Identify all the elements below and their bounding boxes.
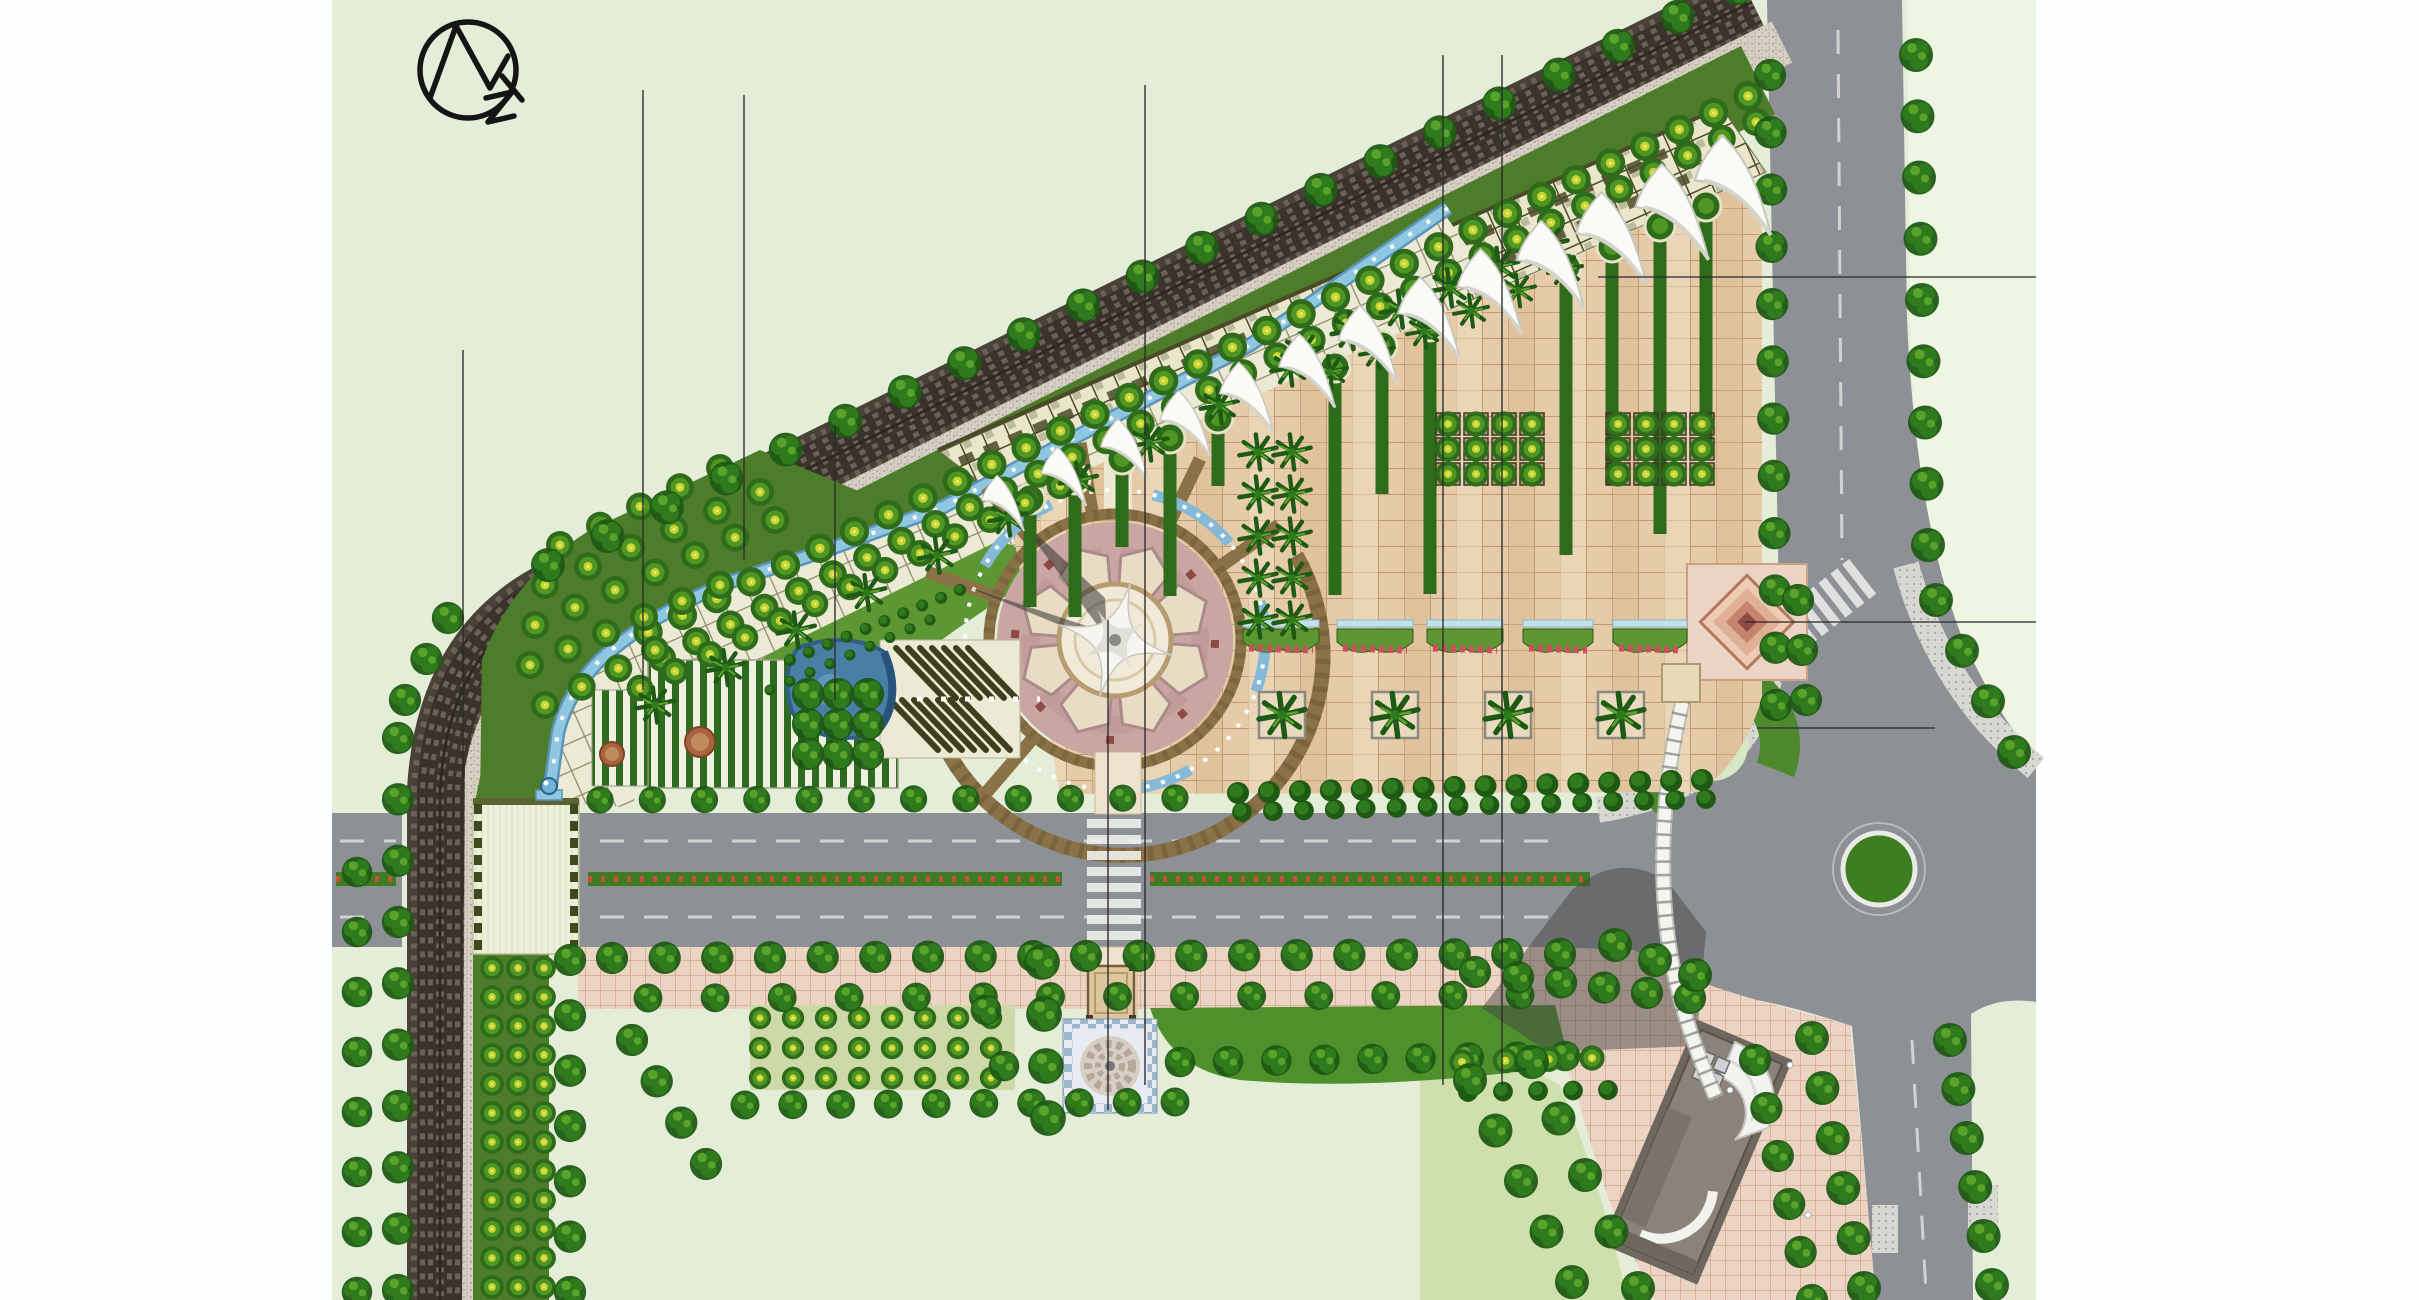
tree-icon (769, 433, 803, 467)
shrub-icon (1493, 1082, 1513, 1102)
tree-icon (792, 678, 824, 710)
shrub-icon (1413, 777, 1435, 799)
tree-icon (1760, 689, 1792, 721)
otree-icon (641, 636, 669, 664)
tree-icon (1126, 260, 1160, 294)
tree-icon (1175, 939, 1207, 971)
otree-icon (480, 1275, 504, 1299)
otree-icon (1519, 461, 1544, 486)
otree-icon (1689, 436, 1714, 461)
tree-icon (822, 708, 854, 740)
tree-icon (1333, 939, 1365, 971)
shrub-icon (897, 607, 909, 619)
tree-icon (410, 643, 442, 675)
otree-icon (1183, 349, 1212, 378)
otree-icon (532, 1275, 556, 1299)
otree-icon (805, 534, 834, 563)
tree-icon (554, 1221, 586, 1253)
otree-icon (480, 985, 504, 1009)
otree-icon (706, 571, 734, 599)
otree-icon (881, 1067, 903, 1089)
tree-icon (591, 519, 625, 553)
shrub-icon (822, 638, 834, 650)
tree-icon (1782, 584, 1814, 616)
otree-icon (480, 1014, 504, 1038)
otree-icon (627, 675, 654, 702)
tree-icon (796, 786, 823, 813)
tree-icon (1028, 1048, 1064, 1084)
shrub-icon (1563, 1081, 1583, 1101)
otree-icon (662, 658, 689, 685)
otree-icon (1321, 282, 1350, 311)
shrub-icon (805, 667, 816, 678)
tree-icon (1902, 161, 1936, 195)
tree-icon (342, 1217, 373, 1248)
tree-icon (1816, 1121, 1850, 1155)
shrub-icon (1258, 781, 1280, 803)
tree-icon (1901, 99, 1935, 133)
tree-icon (382, 1090, 414, 1122)
otree-icon (626, 493, 654, 521)
tree-icon (1113, 1088, 1142, 1117)
otree-icon (506, 1246, 530, 1270)
tree-icon (1907, 344, 1941, 378)
tree-icon (432, 602, 464, 634)
otree-icon (1661, 436, 1686, 461)
tree-icon (1967, 1219, 2001, 1253)
site-plan-svg (0, 0, 2419, 1300)
tree-icon (342, 977, 373, 1008)
glass-canopy (1613, 620, 1687, 627)
tree-icon (1542, 58, 1576, 92)
tree-icon (1958, 1170, 1992, 1204)
tree-icon (1555, 1265, 1589, 1299)
tree-icon (852, 738, 884, 770)
tree-icon (1304, 981, 1333, 1010)
tree-icon (1261, 1045, 1292, 1076)
otree-icon (506, 985, 530, 1009)
otree-icon (506, 1188, 530, 1212)
tree-icon (1057, 785, 1084, 812)
otree-icon (1519, 436, 1544, 461)
otree-icon (604, 654, 632, 682)
otree-icon (1011, 433, 1040, 462)
shrub-icon (885, 632, 896, 643)
tree-icon (1024, 944, 1060, 980)
tree-icon (1304, 173, 1338, 207)
tree-icon (1899, 38, 1933, 72)
ramp-landing (1662, 664, 1700, 702)
tree-icon (743, 786, 770, 813)
tree-icon (1357, 1044, 1388, 1075)
otree-icon (1149, 366, 1178, 395)
shrub-icon (1387, 798, 1407, 818)
shrub-icon (1660, 770, 1682, 792)
tree-icon (852, 708, 884, 740)
shrub-icon (1480, 795, 1500, 815)
otree-icon (947, 1007, 969, 1029)
otree-icon (1605, 461, 1630, 486)
tree-icon (1739, 1044, 1771, 1076)
shrub-icon (1505, 774, 1527, 796)
master-plan-canvas (0, 0, 2419, 1300)
tree-icon (1386, 939, 1418, 971)
otree-icon (532, 1072, 556, 1096)
shrub-icon (1418, 797, 1438, 817)
tree-icon (1941, 1072, 1975, 1106)
west-entry-plaza (473, 778, 579, 954)
otree-icon (782, 1067, 804, 1089)
tree-icon (1826, 1171, 1860, 1205)
tree-icon (1453, 1063, 1487, 1097)
tree-icon (900, 785, 927, 812)
sphere-fountain (541, 778, 557, 794)
otree-icon (815, 1007, 837, 1029)
tree-icon (1309, 1045, 1340, 1076)
tree-icon (1007, 317, 1041, 351)
tree-icon (1757, 345, 1789, 377)
otree-icon (1218, 333, 1247, 362)
otree-icon (641, 559, 669, 587)
otree-icon (480, 956, 504, 980)
tree-icon (1904, 222, 1938, 256)
tree-icon (382, 906, 414, 938)
tree-icon (1213, 1046, 1244, 1077)
shrub-icon (1294, 800, 1314, 820)
otree-icon (1605, 411, 1630, 436)
shrub-icon (1227, 782, 1249, 804)
shrub-icon (1320, 779, 1342, 801)
tree-icon (922, 1089, 951, 1118)
tree-icon (971, 995, 1002, 1026)
tree-icon (1544, 938, 1576, 970)
tree-icon (634, 984, 663, 1013)
tree-icon (1950, 1121, 1984, 1155)
shrub-icon (845, 650, 856, 661)
shrub-icon (1598, 1080, 1618, 1100)
otree-icon (480, 1130, 504, 1154)
otree-icon (732, 624, 759, 651)
tree-icon (989, 1051, 1020, 1082)
tree-icon (1459, 956, 1491, 988)
shrub-icon (860, 623, 872, 635)
otree-icon (1699, 98, 1728, 127)
tree-icon (342, 1097, 373, 1128)
otree-icon (506, 1072, 530, 1096)
tree-icon (792, 738, 824, 770)
tree-icon (701, 983, 730, 1012)
tree-icon (1545, 966, 1577, 998)
otree-icon (532, 1159, 556, 1183)
otree-icon (521, 611, 549, 639)
otree-icon (532, 1217, 556, 1241)
tree-icon (382, 1151, 414, 1183)
otree-icon (749, 1067, 771, 1089)
tree-icon (709, 461, 743, 495)
striped-parterre-small (592, 690, 648, 786)
tree-icon (1678, 958, 1712, 992)
tree-icon (1588, 971, 1620, 1003)
tree-icon (828, 404, 862, 438)
otree-icon (1630, 132, 1659, 161)
otree-icon (532, 1014, 556, 1038)
otree-icon (761, 506, 789, 534)
tree-icon (1997, 735, 2031, 769)
tree-icon (1910, 467, 1944, 501)
tree-icon (1502, 961, 1534, 993)
tree-icon (382, 1029, 414, 1061)
otree-icon (1463, 411, 1488, 436)
otree-icon (881, 1037, 903, 1059)
tree-icon (1598, 928, 1632, 962)
otree-icon (736, 567, 765, 596)
otree-icon (749, 1037, 771, 1059)
tree-icon (1185, 231, 1219, 265)
otree-icon (907, 540, 934, 567)
shrub-icon (1263, 801, 1283, 821)
shrub-icon (954, 584, 966, 596)
tree-icon (1755, 231, 1787, 263)
otree-icon (1463, 461, 1488, 486)
tree-icon (342, 917, 373, 948)
otree-icon (874, 500, 903, 529)
otree-icon (532, 1188, 556, 1212)
otree-icon (914, 1067, 936, 1089)
tree-icon (754, 941, 786, 973)
tree-icon (554, 1055, 586, 1087)
otree-icon (1493, 1048, 1518, 1073)
otree-icon (480, 1246, 504, 1270)
tree-icon (859, 941, 891, 973)
shrub-icon (1528, 1081, 1548, 1101)
tree-icon (1244, 202, 1278, 236)
shrub-icon (935, 592, 947, 604)
tree-icon (1542, 1102, 1576, 1136)
otree-icon (746, 478, 774, 506)
tree-icon (701, 941, 733, 973)
tree-icon (1109, 785, 1136, 812)
tree-icon (691, 786, 718, 813)
otree-icon (1458, 215, 1487, 244)
tree-icon (1638, 943, 1672, 977)
otree-icon (881, 1007, 903, 1029)
tree-icon (1971, 684, 2005, 718)
otree-icon (1596, 148, 1625, 177)
otree-icon (1661, 411, 1686, 436)
otree-icon (1491, 436, 1516, 461)
tree-icon (650, 490, 684, 524)
otree-icon (568, 673, 596, 701)
otree-icon (601, 576, 629, 604)
tree-icon (1762, 1140, 1794, 1172)
shrub-icon (1541, 793, 1561, 813)
otree-icon (532, 1101, 556, 1125)
shrub-icon (1449, 796, 1469, 816)
tree-icon (822, 678, 854, 710)
otree-icon (943, 467, 972, 496)
shrub-icon (1696, 789, 1716, 809)
tree-icon (826, 1090, 855, 1119)
tree-icon (888, 375, 922, 409)
otree-icon (554, 635, 582, 663)
tree-icon (665, 1107, 697, 1139)
shrub-icon (865, 641, 876, 652)
tree-icon (382, 845, 414, 877)
otree-icon (848, 1067, 870, 1089)
otree-icon (630, 603, 658, 631)
otree-icon (1491, 411, 1516, 436)
otree-icon (532, 1246, 556, 1270)
tree-icon (531, 548, 565, 582)
tree-icon (1631, 977, 1663, 1009)
tree-icon (382, 967, 414, 999)
tree-icon (641, 1065, 673, 1097)
otree-icon (947, 1067, 969, 1089)
hedge-tree-crown (1698, 198, 1714, 214)
otree-icon (782, 1037, 804, 1059)
otree-icon (506, 1159, 530, 1183)
tree-icon (586, 786, 613, 813)
otree-icon (1665, 115, 1694, 144)
tree-icon (342, 857, 373, 888)
tree-icon (778, 1090, 807, 1119)
shrub-icon (1691, 769, 1713, 791)
otree-icon (1633, 436, 1658, 461)
otree-icon (532, 956, 556, 980)
tree-icon (969, 1089, 998, 1118)
tree-icon (1911, 528, 1945, 562)
tree-icon (902, 983, 931, 1012)
tree-icon (965, 940, 997, 972)
otree-icon (506, 1275, 530, 1299)
otree-icon (1046, 416, 1075, 445)
tree-icon (1026, 996, 1062, 1032)
tree-icon (1515, 1045, 1549, 1079)
shrub-icon (1444, 776, 1466, 798)
otree-icon (1674, 142, 1702, 170)
otree-icon (1355, 266, 1384, 295)
shrub-icon (878, 615, 890, 627)
otree-icon (1527, 182, 1556, 211)
shrub-icon (1232, 802, 1252, 822)
otree-icon (1493, 199, 1522, 228)
tree-icon (342, 1157, 373, 1188)
tree-icon (596, 942, 628, 974)
shrub-icon (1289, 780, 1311, 802)
tree-icon (649, 942, 681, 974)
otree-icon (681, 541, 709, 569)
otree-icon (840, 517, 869, 546)
otree-icon (908, 483, 937, 512)
shrub-icon (825, 658, 836, 669)
tree-icon (1773, 1188, 1805, 1220)
tree-icon (1161, 1088, 1190, 1117)
tree-icon (912, 941, 944, 973)
tree-icon (382, 722, 414, 754)
otree-icon (516, 651, 544, 679)
tree-icon (690, 1148, 722, 1180)
tree-icon (1919, 583, 1953, 617)
otree-icon (1390, 249, 1419, 278)
otree-icon (1435, 461, 1460, 486)
tree-icon (1165, 1047, 1196, 1078)
otree-icon (1491, 461, 1516, 486)
tree-icon (1754, 116, 1786, 148)
tree-icon (554, 1165, 586, 1197)
otree-icon (1252, 316, 1281, 345)
tree-icon (1170, 982, 1199, 1011)
otree-icon (1286, 299, 1315, 328)
tree-icon (1479, 1114, 1513, 1148)
otree-icon (1689, 411, 1714, 436)
otree-icon (1605, 175, 1633, 203)
shrub-icon (1603, 792, 1623, 812)
hedge-tree-crown (1652, 218, 1668, 234)
otree-icon (1435, 411, 1460, 436)
otree-icon (815, 1037, 837, 1059)
tree-icon (1423, 115, 1457, 149)
otree-icon (531, 691, 559, 719)
tree-icon (554, 1110, 586, 1142)
otree-icon (848, 1037, 870, 1059)
tree-icon (1363, 144, 1397, 178)
otree-icon (574, 552, 602, 580)
shrub-icon (1382, 778, 1404, 800)
tree-icon (1030, 1100, 1066, 1136)
tree-icon (852, 678, 884, 710)
otree-icon (506, 1217, 530, 1241)
otree-icon (480, 1101, 504, 1125)
glass-canopy (1523, 620, 1593, 627)
otree-icon (1463, 436, 1488, 461)
bus-bay-west (1872, 1205, 1898, 1253)
tree-icon (1281, 939, 1313, 971)
tree-icon (1945, 634, 1979, 668)
shrub-icon (784, 654, 796, 666)
otree-icon (480, 1072, 504, 1096)
otree-icon (947, 1037, 969, 1059)
tree-icon (1905, 283, 1939, 317)
tree-icon (1786, 634, 1818, 666)
shrub-icon (841, 631, 853, 643)
otree-icon (480, 1159, 504, 1183)
otree-icon (1579, 1045, 1604, 1070)
tree-icon (1161, 784, 1188, 811)
otree-icon (506, 1130, 530, 1154)
otree-icon (1424, 232, 1453, 261)
tree-icon (1758, 460, 1790, 492)
tree-icon (768, 983, 797, 1012)
shrub-icon (916, 600, 928, 612)
tree-icon (1070, 940, 1102, 972)
otree-icon (771, 550, 800, 579)
otree-icon (1605, 436, 1630, 461)
otree-icon (977, 450, 1006, 479)
otree-icon (749, 1007, 771, 1029)
shrub-icon (765, 685, 776, 696)
tree-icon (554, 944, 586, 976)
tree-icon (1123, 940, 1155, 972)
otree-icon (592, 619, 620, 647)
shrub-icon (803, 646, 815, 658)
otree-icon (1661, 461, 1686, 486)
shrub-icon (1351, 779, 1373, 801)
otree-icon (703, 497, 731, 525)
otree-icon (561, 594, 589, 622)
tree-icon (1758, 517, 1790, 549)
tree-icon (731, 1091, 760, 1120)
tree-icon (835, 983, 864, 1012)
